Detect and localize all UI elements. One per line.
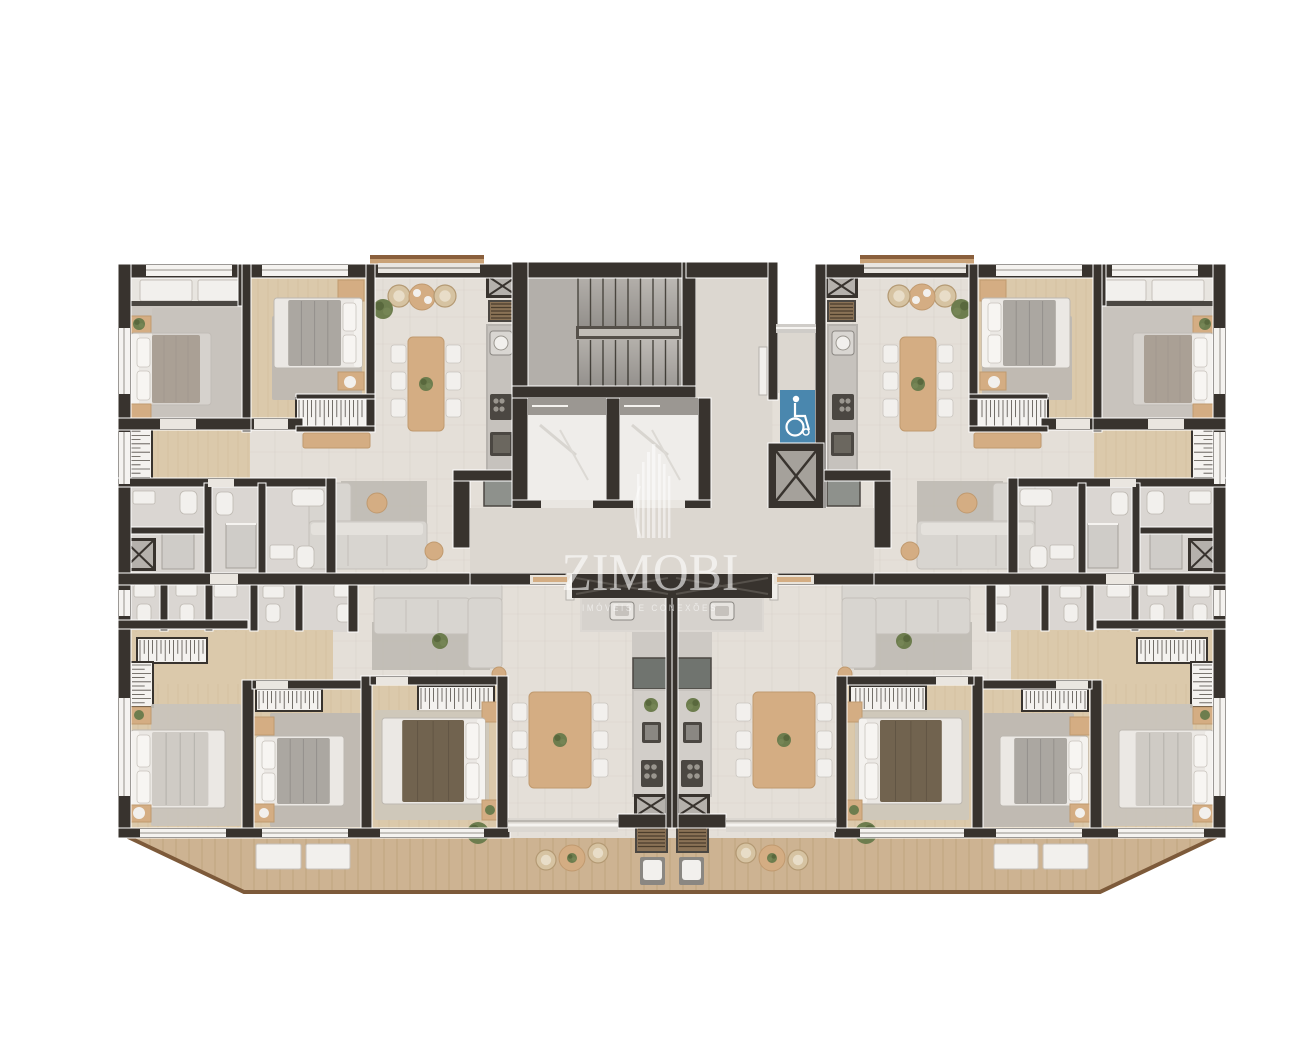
svg-text:IMÓVEIS E CONEXÕES: IMÓVEIS E CONEXÕES [582,603,718,614]
svg-text:ZIMOBI: ZIMOBI [562,544,739,602]
